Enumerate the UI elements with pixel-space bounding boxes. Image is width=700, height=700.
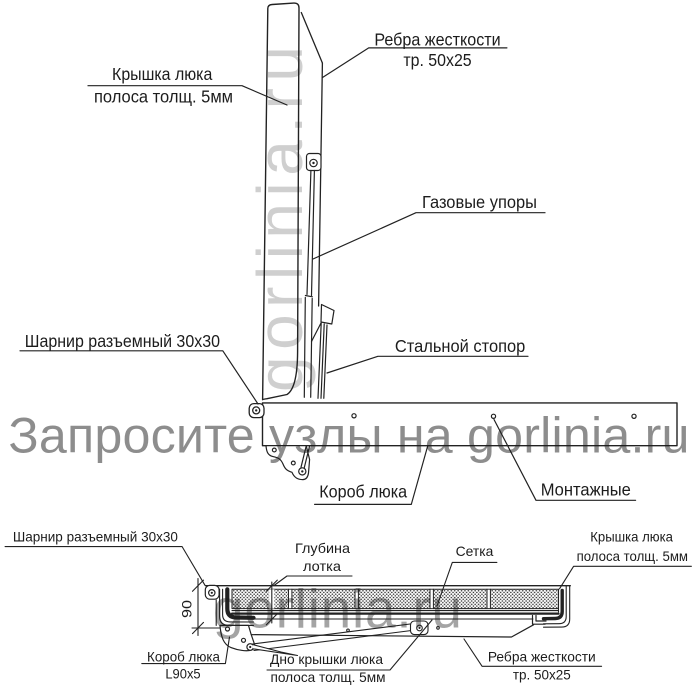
svg-text:тр. 50х25: тр. 50х25 (403, 50, 471, 70)
svg-text:Шарнир разъемный 30х30: Шарнир разъемный 30х30 (13, 530, 178, 545)
svg-text:Газовые упоры: Газовые упоры (422, 192, 537, 212)
svg-text:90: 90 (180, 600, 195, 618)
svg-text:Ребра жесткости: Ребра жесткости (374, 29, 500, 49)
svg-text:полоса толщ. 5мм: полоса толщ. 5мм (271, 670, 386, 685)
svg-text:Шарнир разъемный 30х30: Шарнир разъемный 30х30 (25, 331, 220, 351)
svg-text:Монтажные: Монтажные (541, 480, 631, 500)
svg-text:полоса толщ. 5мм: полоса толщ. 5мм (577, 549, 688, 564)
svg-text:Крышка люка: Крышка люка (590, 530, 673, 545)
svg-text:лотка: лотка (303, 559, 341, 574)
svg-text:gorlinia.ru: gorlinia.ru (213, 577, 463, 639)
svg-text:Дно крышки люка: Дно крышки люка (270, 652, 383, 667)
svg-text:L90х5: L90х5 (165, 667, 201, 682)
svg-text:gorlinia.ru: gorlinia.ru (244, 39, 316, 392)
svg-text:Ребра жесткости: Ребра жесткости (488, 650, 596, 665)
svg-text:Сетка: Сетка (456, 544, 494, 559)
svg-text:Глубина: Глубина (295, 541, 350, 556)
svg-text:Короб люка: Короб люка (147, 649, 220, 664)
svg-text:Крышка люка: Крышка люка (112, 64, 213, 84)
svg-text:Запросите узлы на gorlinia.ru: Запросите узлы на gorlinia.ru (8, 408, 689, 464)
svg-text:тр. 50х25: тр. 50х25 (513, 667, 571, 682)
svg-text:полоса толщ. 5мм: полоса толщ. 5мм (94, 86, 233, 106)
svg-text:Короб люка: Короб люка (319, 482, 407, 502)
svg-text:Стальной стопор: Стальной стопор (395, 336, 525, 356)
